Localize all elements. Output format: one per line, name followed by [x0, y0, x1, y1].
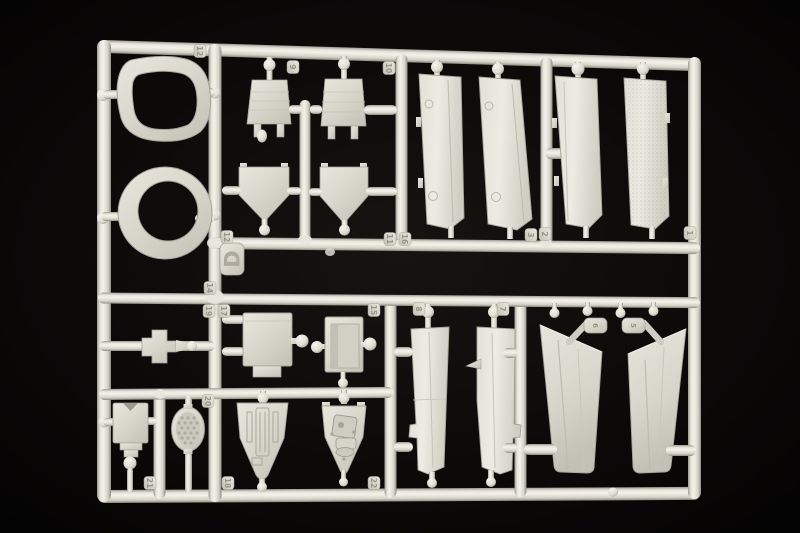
number-tag: 15 [369, 305, 378, 315]
fuselage-panel-4 [624, 62, 670, 239]
runner-left [97, 40, 111, 502]
number-tag: 21 [145, 478, 154, 488]
number-tag: 8 [414, 306, 423, 311]
number-tag: 9 [288, 64, 297, 69]
number-tag: 17 [219, 306, 228, 316]
runner-vertical-3-top [396, 54, 408, 245]
bracket-number-tag: 5 [629, 323, 637, 328]
number-tag: 20 [203, 396, 212, 406]
runner-vertical-2 [209, 44, 222, 502]
runner-vertical-mini [300, 100, 311, 243]
sprue-photo: 6 5 D 12 12 9 10 14 19 17 20 21 18 22 15… [0, 0, 800, 533]
sprue-letter: D [221, 250, 245, 267]
bracket-number-tag: 6 [591, 323, 599, 328]
photo-background: 6 5 D 12 12 9 10 14 19 17 20 21 18 22 15… [0, 0, 800, 533]
sprue-letter-plate: D [220, 243, 245, 275]
number-tag: 12 [222, 232, 231, 242]
number-tag: 16 [400, 234, 409, 244]
number-tag: 22 [369, 478, 378, 488]
number-tag: 12 [195, 46, 204, 56]
door-hinge [331, 324, 338, 368]
number-tag: 18 [223, 478, 232, 488]
number-tag: 1 [685, 230, 694, 235]
number-tag: 11 [385, 234, 394, 244]
number-tag: 3 [526, 232, 535, 237]
number-tag: 19 [204, 306, 213, 316]
number-tag: 7 [498, 306, 507, 311]
number-tag: 2 [540, 231, 549, 236]
runner-right [688, 57, 701, 499]
number-tag: 10 [384, 63, 393, 73]
number-tag: 14 [205, 283, 214, 293]
runner-vertical-5 [515, 296, 527, 497]
